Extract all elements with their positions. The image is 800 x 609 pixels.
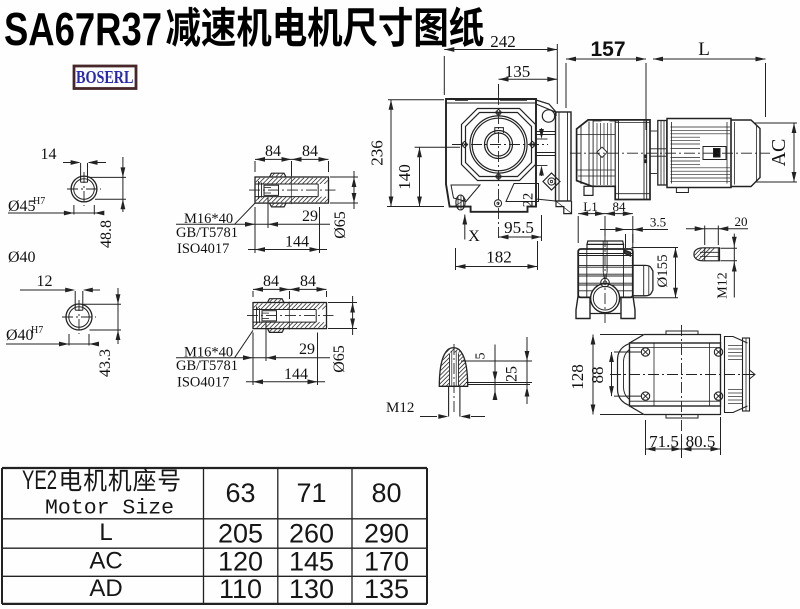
svg-text:80.5: 80.5 <box>686 432 716 451</box>
svg-text:48.8: 48.8 <box>98 220 115 248</box>
svg-text:135: 135 <box>364 574 409 604</box>
svg-text:X: X <box>468 228 480 245</box>
svg-text:84: 84 <box>613 199 627 214</box>
svg-text:Ø40: Ø40 <box>6 327 34 344</box>
svg-text:84: 84 <box>265 143 281 160</box>
svg-text:43.3: 43.3 <box>97 349 114 377</box>
svg-text:AC: AC <box>89 548 122 575</box>
svg-text:88: 88 <box>588 367 607 384</box>
svg-text:145: 145 <box>289 547 334 577</box>
svg-text:3.5: 3.5 <box>650 215 666 230</box>
svg-text:22: 22 <box>521 193 537 208</box>
svg-text:Ø65: Ø65 <box>332 211 349 239</box>
svg-text:BOSERL: BOSERL <box>76 67 134 87</box>
svg-text:242: 242 <box>490 32 516 51</box>
svg-text:Motor Size: Motor Size <box>45 497 174 521</box>
svg-text:GB/T5781: GB/T5781 <box>176 358 238 374</box>
svg-text:80: 80 <box>371 478 401 508</box>
svg-text:84: 84 <box>300 273 316 290</box>
svg-text:M12: M12 <box>386 400 414 416</box>
svg-text:Ø65: Ø65 <box>331 345 348 373</box>
svg-text:63: 63 <box>225 478 255 508</box>
svg-text:AD: AD <box>89 575 122 602</box>
svg-text:L: L <box>99 519 112 546</box>
svg-text:L1: L1 <box>583 199 597 214</box>
svg-text:GB/T5781: GB/T5781 <box>176 225 238 241</box>
svg-text:14: 14 <box>41 146 57 163</box>
svg-text:128: 128 <box>568 364 587 390</box>
svg-text:ISO4017: ISO4017 <box>177 374 229 390</box>
svg-text:135: 135 <box>505 62 531 81</box>
svg-text:5: 5 <box>474 353 489 360</box>
svg-text:182: 182 <box>486 248 512 267</box>
svg-text:120: 120 <box>218 547 263 577</box>
svg-text:H7: H7 <box>33 196 45 207</box>
svg-text:71: 71 <box>296 478 326 508</box>
svg-text:260: 260 <box>289 519 334 549</box>
svg-text:SA67R37: SA67R37 <box>4 3 162 55</box>
svg-text:29: 29 <box>299 341 315 358</box>
svg-text:84: 84 <box>302 143 318 160</box>
svg-text:205: 205 <box>218 519 263 549</box>
svg-text:29: 29 <box>302 208 318 225</box>
svg-text:290: 290 <box>364 519 409 549</box>
svg-text:Ø45: Ø45 <box>8 198 36 215</box>
svg-text:25: 25 <box>504 366 521 382</box>
svg-text:AC: AC <box>768 139 790 167</box>
svg-text:144: 144 <box>285 234 309 251</box>
svg-text:12: 12 <box>37 273 53 290</box>
svg-text:170: 170 <box>364 547 409 577</box>
svg-text:M12: M12 <box>716 272 731 298</box>
svg-text:H7: H7 <box>31 325 43 336</box>
svg-text:L: L <box>698 39 710 60</box>
svg-text:71.5: 71.5 <box>649 432 679 451</box>
svg-text:ISO4017: ISO4017 <box>177 241 229 257</box>
svg-text:20: 20 <box>735 214 748 229</box>
svg-text:Ø40: Ø40 <box>8 249 36 266</box>
svg-text:95.5: 95.5 <box>504 218 534 237</box>
svg-text:144: 144 <box>284 366 308 383</box>
svg-text:130: 130 <box>289 574 334 604</box>
svg-text:84: 84 <box>263 273 279 290</box>
svg-text:110: 110 <box>219 574 262 604</box>
svg-text:Ø155: Ø155 <box>655 254 671 287</box>
svg-text:140: 140 <box>395 164 414 190</box>
svg-text:236: 236 <box>368 140 387 166</box>
svg-text:157: 157 <box>590 38 625 61</box>
svg-text:YE2: YE2 <box>22 465 57 495</box>
